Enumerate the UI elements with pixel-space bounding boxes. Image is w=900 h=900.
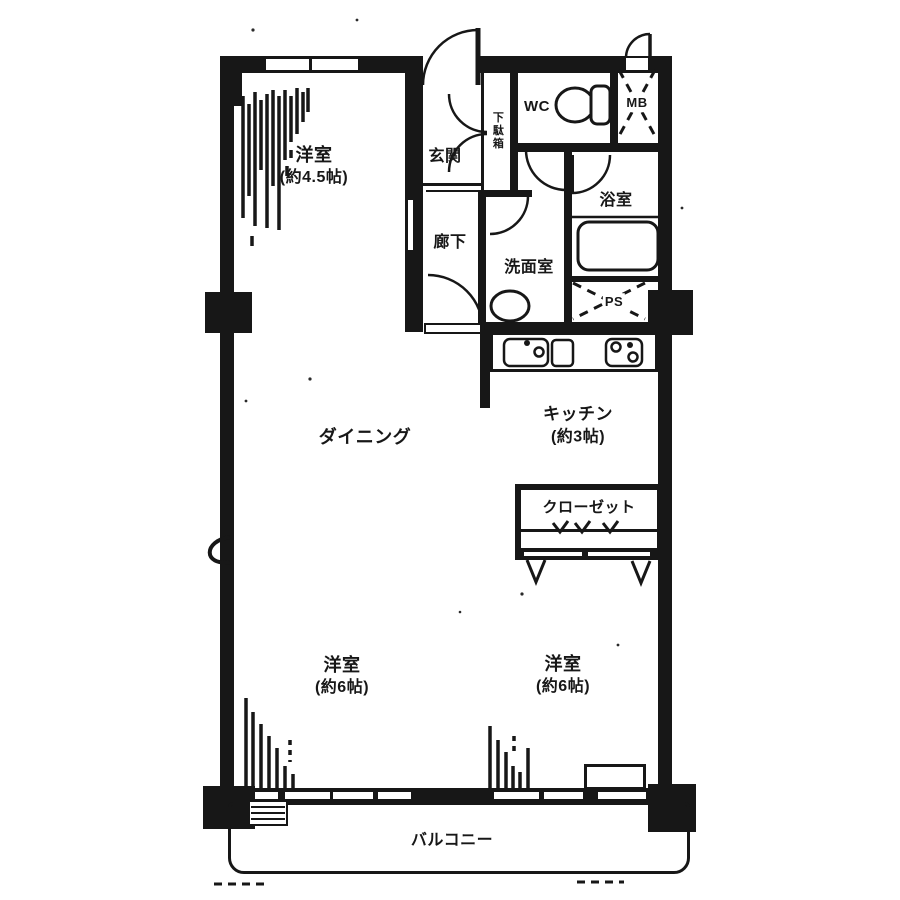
label-washroom: 洗面室 xyxy=(504,257,554,279)
hatch-bottom-left xyxy=(246,698,293,788)
wall-right xyxy=(658,56,672,802)
meter-box-door-swing xyxy=(626,34,650,58)
label-bedroom-top: 洋室 (約4.5帖) xyxy=(280,143,348,189)
wall-shoe-cabinet-left xyxy=(481,70,484,190)
closet-shelf-line xyxy=(521,529,657,532)
window-top-bedroom xyxy=(266,59,358,70)
label-wc: WC xyxy=(524,97,550,117)
label-bedroom-left: 洋室 (約6帖) xyxy=(315,653,369,699)
balcony-louver-line-2 xyxy=(251,812,285,814)
kitchen-counter xyxy=(490,332,658,372)
wall-left-corner-block xyxy=(222,56,242,106)
window-bottom-4 xyxy=(378,792,411,799)
label-meter-box: MB xyxy=(624,94,649,112)
bathroom-door-swing xyxy=(572,155,610,193)
label-pipe-space: PS xyxy=(603,293,625,311)
floor-plan: 洋室 (約4.5帖) 玄関 下駄箱 WC MB 浴室 廊下 洗面室 PS ダイニ… xyxy=(0,0,900,900)
hatch-bottom-middle xyxy=(490,726,528,788)
wc-door-swing xyxy=(526,150,566,190)
wall-wc-mb-divider xyxy=(610,58,618,146)
label-kitchen: キッチン (約3帖) xyxy=(543,404,613,449)
label-closet: クローゼット xyxy=(542,498,635,518)
label-bedroom-top-size: (約4.5帖) xyxy=(280,167,348,189)
toilet-icon xyxy=(556,86,610,124)
label-dining: ダイニング xyxy=(319,425,412,449)
wall-wc-left xyxy=(510,56,518,190)
meter-box-door-gap xyxy=(626,58,648,70)
window-bottom-3 xyxy=(333,792,373,799)
wall-bedroom-top-right xyxy=(405,56,423,332)
label-bathroom: 浴室 xyxy=(599,190,632,212)
closet-bottom-slit-2 xyxy=(588,552,650,556)
closet-bottom-slit-1 xyxy=(524,552,582,556)
door-slot-bedroom-top xyxy=(408,200,413,250)
wall-left xyxy=(220,56,234,802)
hallway-door-leaf xyxy=(424,323,482,334)
window-bottom-5 xyxy=(494,792,539,799)
closet-wall-top xyxy=(515,484,663,490)
equipment-box xyxy=(584,764,646,790)
window-bottom-2 xyxy=(285,792,330,799)
label-balcony: バルコニー xyxy=(411,830,493,852)
entrance-door-swing xyxy=(423,28,478,85)
wall-pipe-space-top xyxy=(564,276,659,282)
wall-washroom-top xyxy=(484,190,532,197)
entrance-step-line-1 xyxy=(423,183,483,186)
wall-washroom-left xyxy=(478,190,486,330)
plan-symbols-layer xyxy=(0,0,900,900)
balcony-louver-line-1 xyxy=(251,806,285,808)
label-bedroom-top-name: 洋室 xyxy=(280,143,348,167)
label-shoe-cabinet: 下駄箱 xyxy=(490,112,505,151)
label-entrance: 玄関 xyxy=(428,146,461,168)
entrance-step-line-2 xyxy=(426,190,483,192)
wall-wc-bottom xyxy=(510,143,659,152)
pillar-left-mid xyxy=(205,292,252,333)
balcony-dash-marks xyxy=(214,882,624,884)
wall-kitchen-divider xyxy=(480,322,490,408)
washroom-door-swing xyxy=(490,196,528,234)
window-bottom-7 xyxy=(598,792,646,799)
label-hallway: 廊下 xyxy=(433,232,466,254)
window-bottom-6 xyxy=(544,792,583,799)
hallway-door-swing xyxy=(428,275,483,330)
label-bedroom-right: 洋室 (約6帖) xyxy=(536,652,590,698)
washbasin-icon xyxy=(491,291,529,321)
window-top-divider xyxy=(309,59,312,70)
balcony-louver-line-3 xyxy=(251,818,285,820)
wall-bath-left xyxy=(564,152,572,330)
bathtub-icon xyxy=(578,222,658,270)
